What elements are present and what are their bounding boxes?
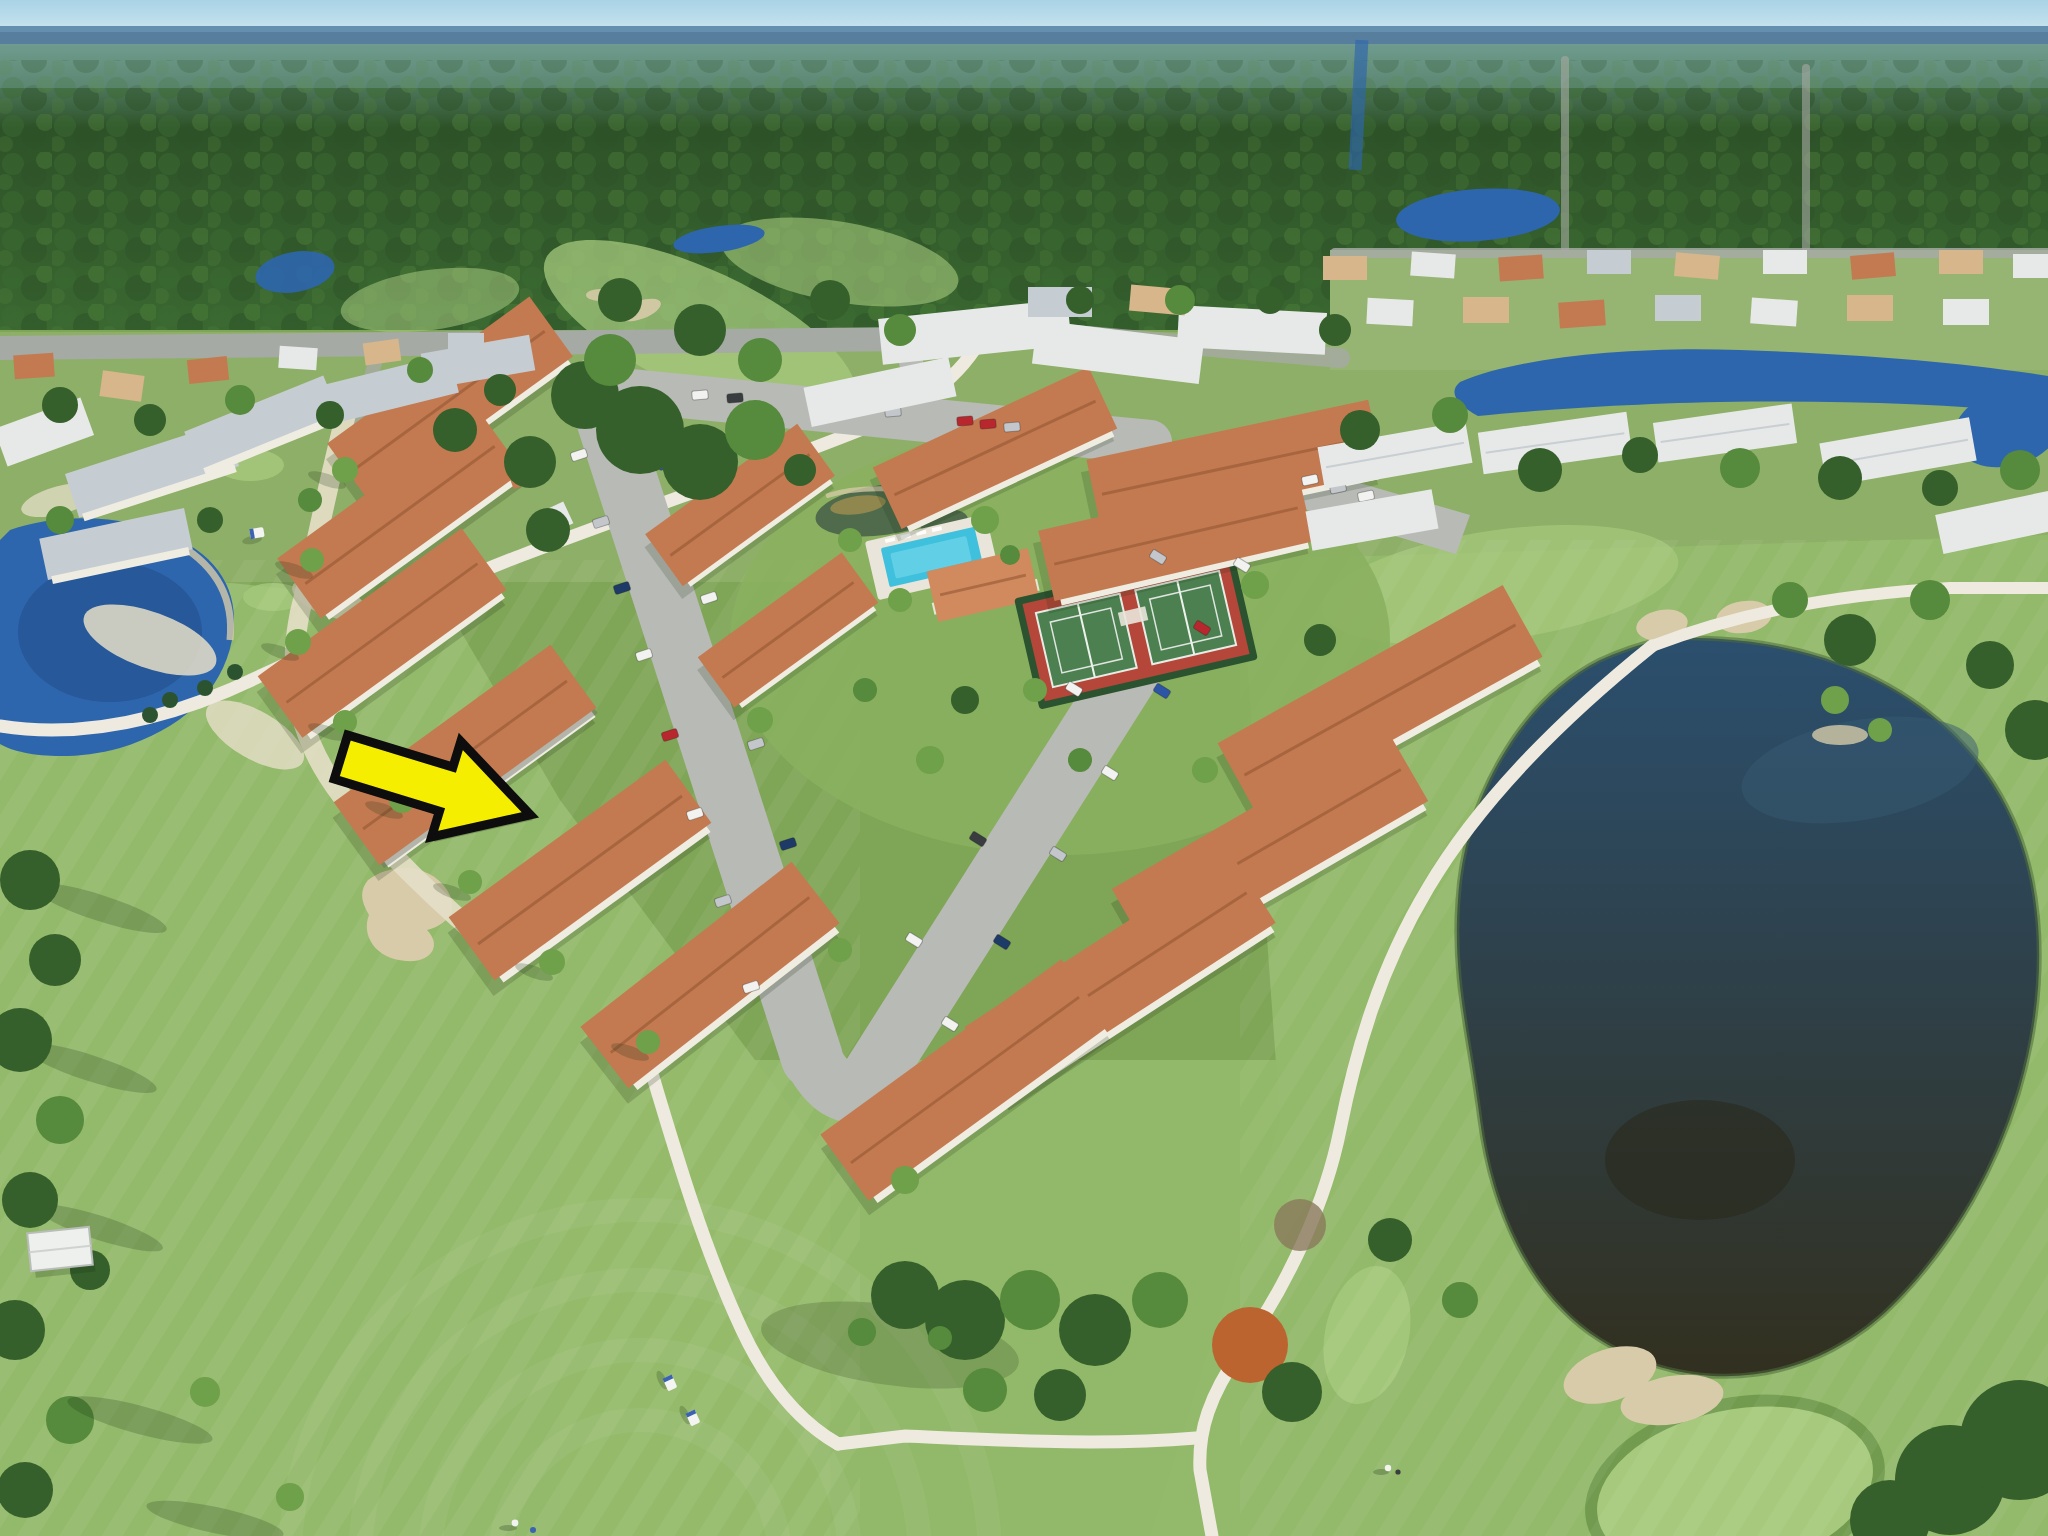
maintenance-shed bbox=[27, 1227, 95, 1278]
dead-tree bbox=[1274, 1199, 1326, 1251]
car bbox=[980, 419, 997, 429]
aerial-photo-canvas: Aerial drone photograph — golf-course co… bbox=[0, 0, 2048, 1536]
car bbox=[692, 390, 709, 400]
aerial-photo: Aerial drone photograph — golf-course co… bbox=[0, 0, 2048, 1536]
car bbox=[1004, 422, 1021, 432]
car bbox=[957, 416, 974, 426]
car bbox=[727, 393, 744, 403]
